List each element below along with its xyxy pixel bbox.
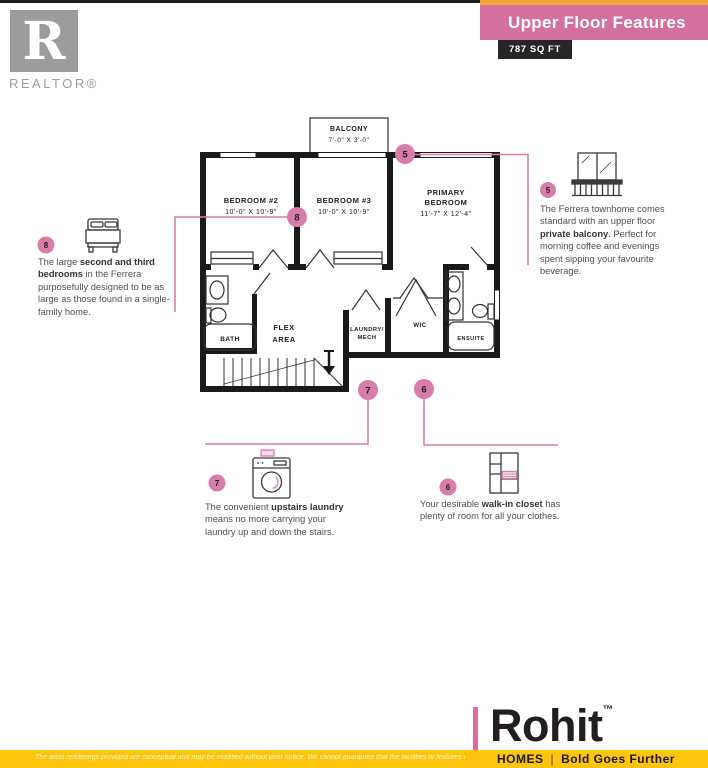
washer-icon: [253, 450, 290, 498]
callout-circle-8: 8: [44, 241, 49, 250]
flex-label-1: FLEX: [273, 323, 294, 332]
callout-6-pre: Your desirable: [420, 499, 482, 509]
callout-8-pre: The large: [38, 257, 80, 267]
sqft-badge: 787 SQ FT: [498, 40, 572, 59]
balcony-outline: [310, 118, 388, 152]
callout-closet-text: Your desirable walk-in closet has plenty…: [420, 498, 572, 523]
footer-tagline: HOMES|Bold Goes Further: [497, 750, 675, 768]
balcony-label: BALCONY: [330, 126, 368, 133]
stairs-down-arrow: [323, 351, 335, 375]
balcony-icon: [572, 153, 622, 196]
callout-balcony-text: The Ferrera townhome comes standard with…: [540, 203, 676, 277]
plan-windows: [220, 153, 500, 321]
plan-circle-7: 7: [365, 385, 370, 396]
callout-7-bold: upstairs laundry: [271, 502, 343, 512]
laundry-label-2: MECH: [357, 335, 376, 341]
callout-7-pre: The convenient: [205, 502, 271, 512]
bedroom3-label: BEDROOM #3: [317, 196, 372, 205]
primary-dims: 11'-7" X 12'-4": [420, 211, 471, 218]
bedroom2-label: BEDROOM #2: [224, 196, 279, 205]
top-black-strip: [0, 0, 482, 3]
callout-7-post: means no more carrying your laundry up a…: [205, 514, 334, 536]
realtor-logo-label: REALTOR®: [9, 76, 99, 91]
bedroom3-dims: 10'-0" X 10'-9": [318, 209, 370, 216]
laundry-label-1: LAUNDRY/: [350, 327, 384, 333]
callout-circle-5: 5: [546, 186, 551, 195]
callout-circle-7: 7: [215, 479, 220, 488]
primary-label-2: BEDROOM: [425, 198, 468, 207]
footer-divider: |: [551, 752, 555, 766]
footer-disclaimer: The artist renderings provided are conce…: [35, 754, 465, 761]
realtor-logo-letter: R: [22, 11, 65, 72]
floor-plan: BALCONY 7'-0" X 3'-0" BEDROOM #2 10'-0" …: [0, 100, 708, 560]
callout-laundry-text: The convenient upstairs laundry means no…: [205, 501, 347, 538]
plan-circle-8: 8: [294, 212, 299, 223]
trademark-symbol: ™: [602, 704, 613, 716]
wic-label: WIC: [413, 323, 426, 329]
rohit-brand: Rohit: [490, 700, 602, 751]
callout-circle-6: 6: [446, 483, 451, 492]
bed-icon: [86, 219, 120, 252]
flex-label-2: AREA: [272, 335, 295, 344]
callout-5-bold: private balcony: [540, 229, 608, 239]
stairs: [224, 358, 342, 386]
homes-label: HOMES: [497, 752, 544, 766]
closet-icon: [490, 453, 518, 493]
realtor-logo-icon: R: [10, 10, 78, 72]
bedroom2-dims: 10'-0" X 10'-9": [225, 209, 277, 216]
tagline-label: Bold Goes Further: [561, 752, 675, 766]
plan-circle-5: 5: [402, 149, 408, 160]
callout-6-bold: walk-in closet: [482, 499, 543, 509]
rohit-logo: Rohit™: [490, 700, 613, 752]
plan-circle-6: 6: [421, 384, 426, 395]
callout-bedrooms-text: The large second and third bedrooms in t…: [38, 256, 174, 318]
ensuite-label: ENSUITE: [457, 336, 484, 342]
bath-label: BATH: [220, 336, 240, 343]
page-title: Upper Floor Features: [480, 5, 708, 40]
balcony-dims: 7'-0" X 3'-0": [329, 137, 370, 144]
callout-5-pre: The Ferrera townhome comes standard with…: [540, 204, 665, 226]
primary-label-1: PRIMARY: [427, 188, 465, 197]
